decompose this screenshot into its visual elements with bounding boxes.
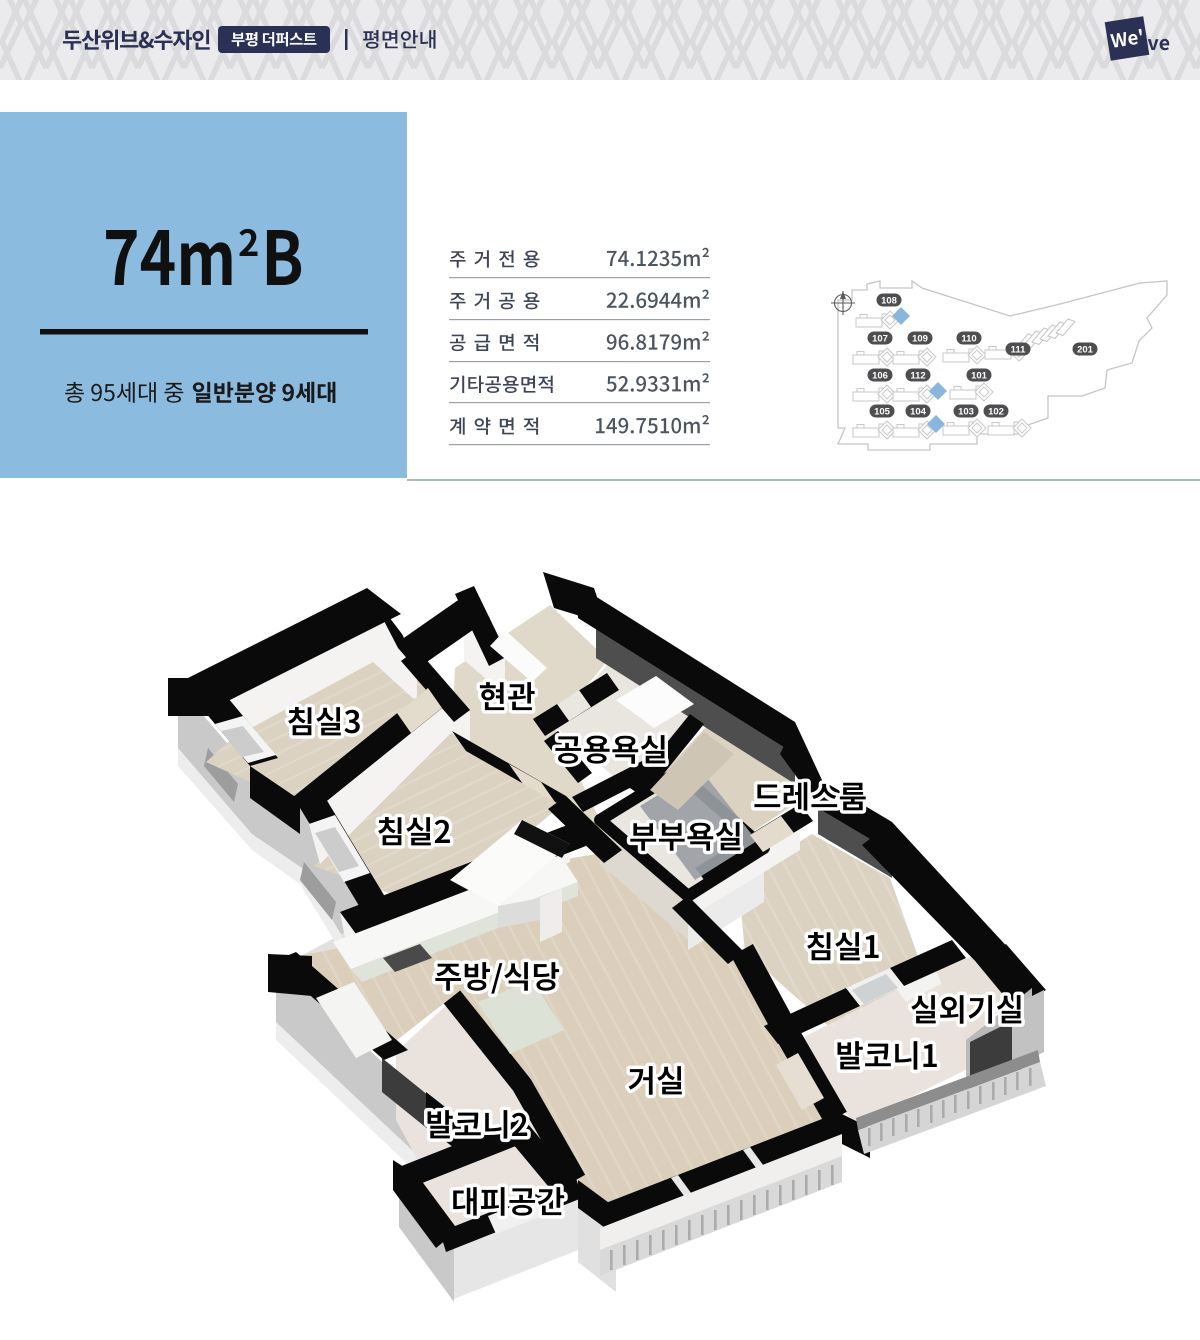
svg-text:201: 201 <box>1077 345 1094 356</box>
svg-text:105: 105 <box>874 407 891 418</box>
svg-text:111: 111 <box>1011 345 1027 356</box>
svg-text:110: 110 <box>961 334 976 345</box>
svg-text:109: 109 <box>912 334 928 345</box>
svg-text:106: 106 <box>872 371 888 382</box>
svg-text:103: 103 <box>958 407 974 418</box>
svg-text:107: 107 <box>872 334 888 345</box>
svg-text:112: 112 <box>910 371 925 382</box>
svg-text:102: 102 <box>988 407 1004 418</box>
svg-text:108: 108 <box>881 296 897 307</box>
svg-text:104: 104 <box>910 407 927 418</box>
svg-text:101: 101 <box>971 371 988 382</box>
